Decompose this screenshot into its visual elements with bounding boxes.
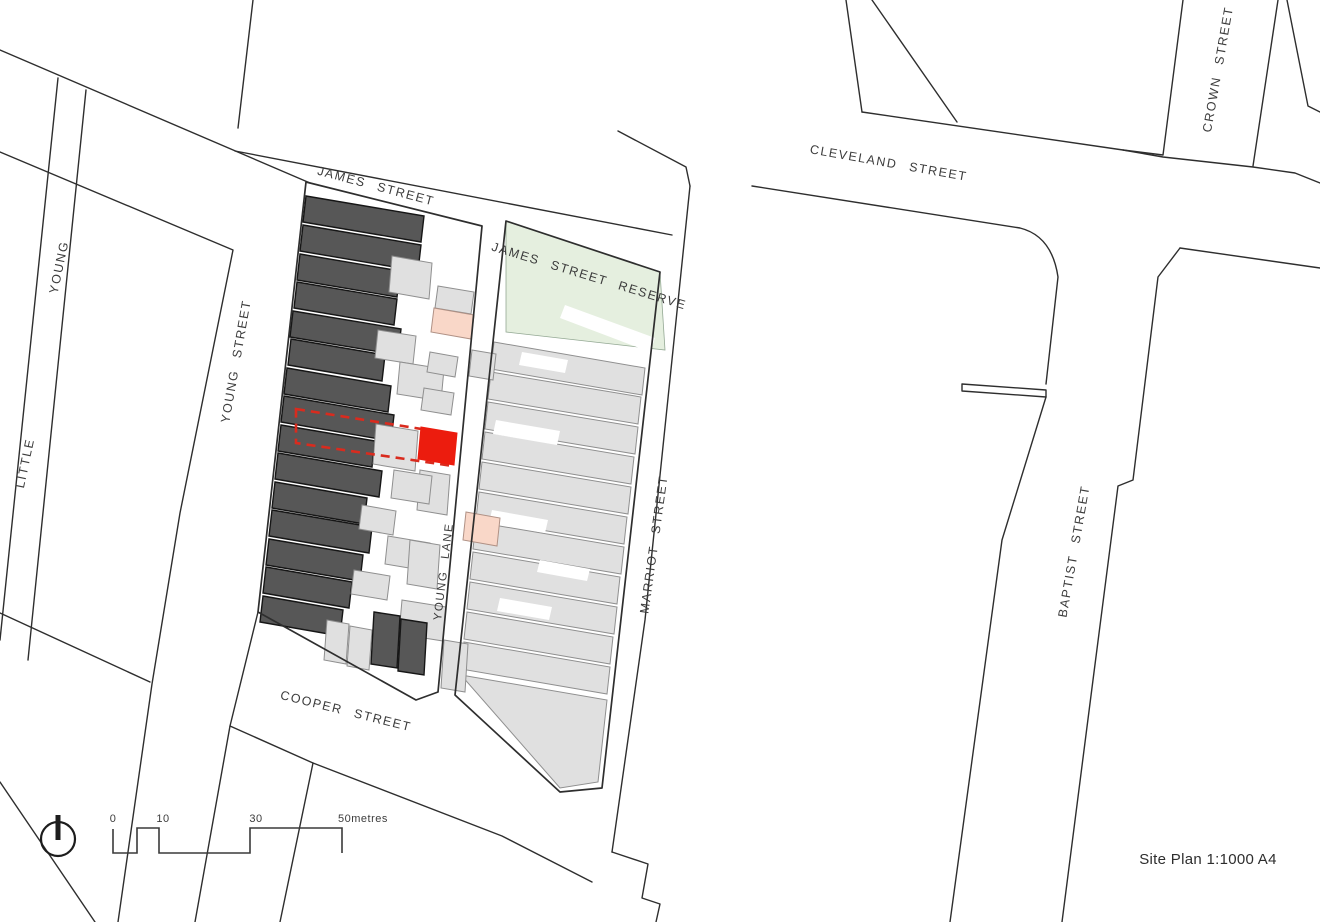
- label-baptist-street: BAPTIST STREET: [1056, 484, 1093, 618]
- scale-label-0: 0: [110, 813, 117, 825]
- label-crown-street: CROWN STREET: [1200, 5, 1236, 133]
- label-cleveland-street: CLEVELAND STREET: [809, 142, 969, 184]
- plan-title: Site Plan 1:1000 A4: [1139, 851, 1276, 868]
- scale-label-10: 10: [156, 813, 169, 825]
- east-block-buildings: [441, 342, 645, 788]
- scale-bar: 0 10 30 50metres: [110, 813, 388, 853]
- label-marriot-street: MARRIOT STREET: [637, 474, 670, 614]
- site-plan-page: JAMES STREET CLEVELAND STREET CROWN STRE…: [0, 0, 1320, 922]
- scale-label-50metres: 50metres: [338, 813, 388, 825]
- scale-label-30: 30: [249, 813, 262, 825]
- street-network: [0, 0, 1320, 922]
- label-cooper-street: COOPER STREET: [279, 688, 413, 734]
- label-young-street: YOUNG STREET: [218, 299, 253, 424]
- label-little-lower: LITTLE: [13, 437, 37, 489]
- north-arrow: [41, 815, 75, 856]
- site-plan-map: JAMES STREET CLEVELAND STREET CROWN STRE…: [0, 0, 1320, 922]
- site-building: [418, 427, 457, 465]
